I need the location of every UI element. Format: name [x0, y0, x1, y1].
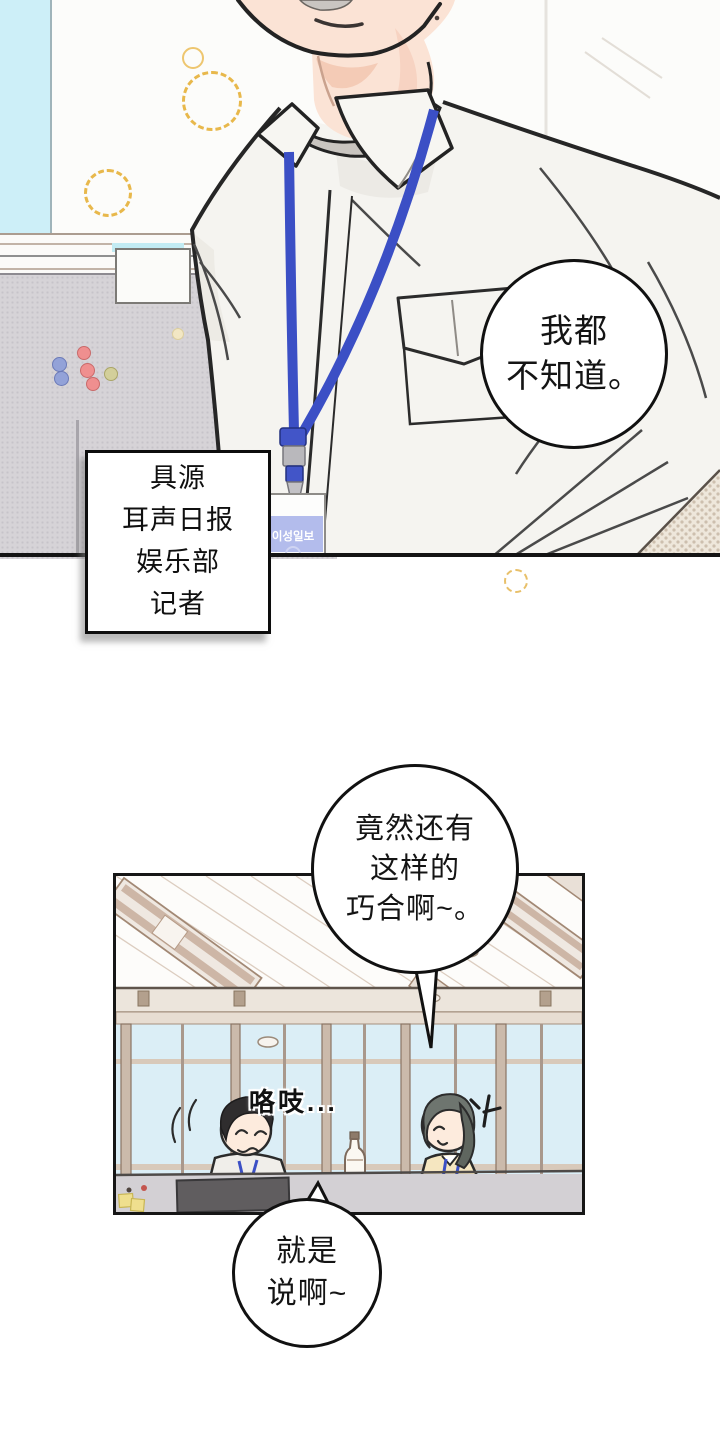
- sfx-text: 咯吱...: [249, 1082, 338, 1119]
- speech-line: 竟然还有: [355, 809, 475, 849]
- speech-bubble-top: 我都 不知道。: [480, 259, 668, 449]
- speech-line: 我都: [540, 309, 608, 354]
- speech-line: 这样的: [370, 849, 460, 889]
- sticky-note: [130, 1198, 144, 1211]
- speech-bubble-bottom: 就是 说啊~: [232, 1198, 382, 1348]
- speech-line: 不知道。: [506, 354, 642, 399]
- caption-line: 记者: [150, 584, 206, 626]
- speech-bubble-middle: 竟然还有 这样的 巧合啊~。: [311, 764, 519, 974]
- speech-line: 巧合啊~。: [346, 889, 484, 929]
- sparkle-icon: [504, 569, 528, 593]
- wall-lines: [585, 38, 662, 98]
- badge-company-text: 이성일보: [272, 529, 315, 543]
- ceiling-beam: [116, 988, 582, 1012]
- caption-line: 娱乐部: [136, 542, 220, 584]
- female-coworker: [421, 1094, 478, 1178]
- caption-line: 耳声日报: [122, 500, 234, 542]
- speech-line: 就是: [276, 1231, 338, 1273]
- neck-mole: [435, 16, 440, 21]
- caption-line: 具源: [150, 458, 206, 500]
- caption-box: 具源 耳声日报 娱乐部 记者: [85, 450, 271, 634]
- speech-line: 说啊~: [267, 1273, 348, 1315]
